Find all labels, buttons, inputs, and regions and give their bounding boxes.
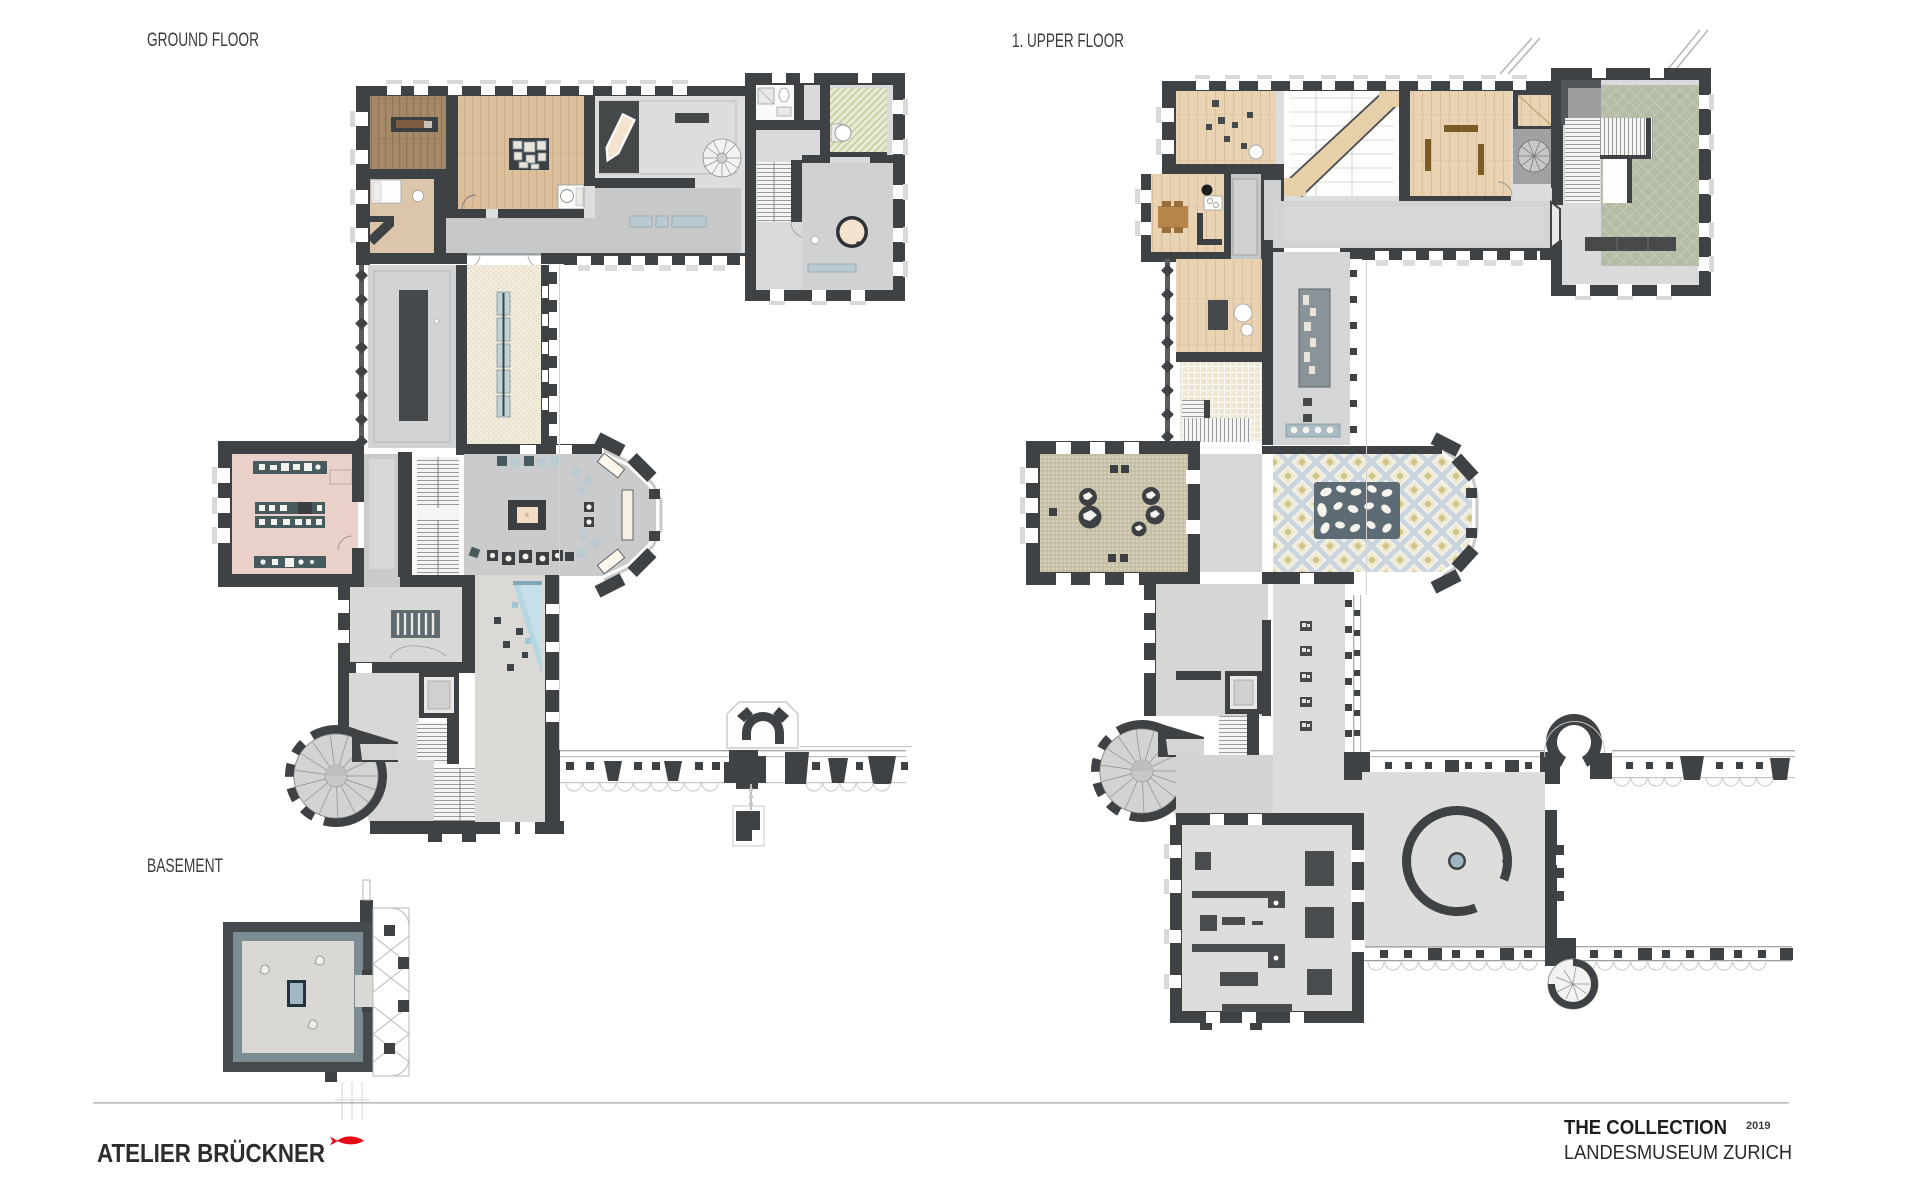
svg-text:1. UPPER FLOOR: 1. UPPER FLOOR (1012, 31, 1124, 52)
svg-text:THE COLLECTION: THE COLLECTION (1564, 1117, 1727, 1139)
svg-text:GROUND FLOOR: GROUND FLOOR (147, 30, 259, 51)
svg-text:BASEMENT: BASEMENT (147, 856, 223, 877)
svg-text:LANDESMUSEUM ZURICH: LANDESMUSEUM ZURICH (1564, 1142, 1792, 1164)
svg-text:2019: 2019 (1746, 1120, 1770, 1132)
svg-text:ATELIER BRÜCKNER: ATELIER BRÜCKNER (97, 1138, 325, 1168)
